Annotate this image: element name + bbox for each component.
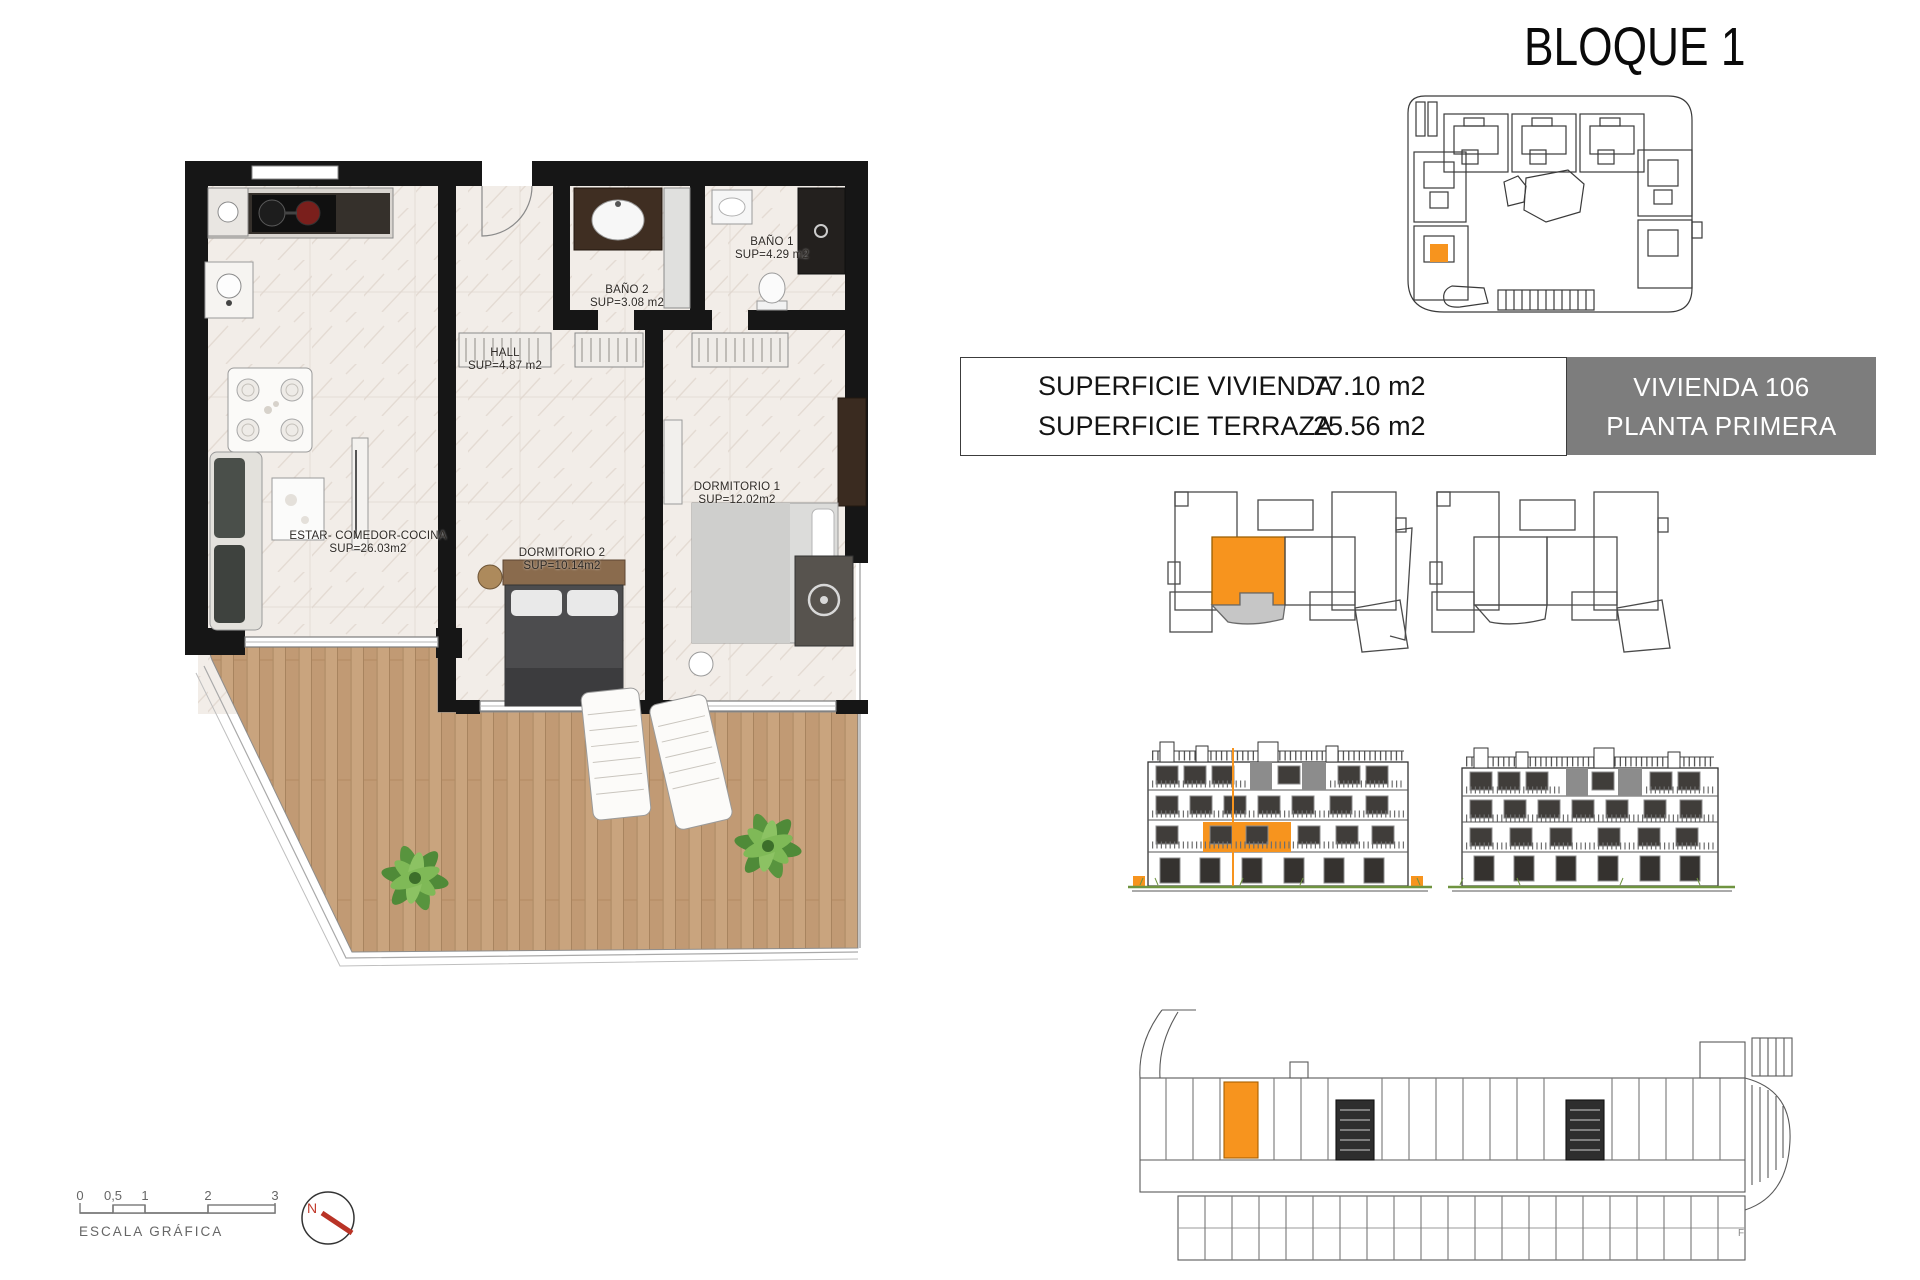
room-name: BAÑO 1 [697,236,847,249]
room-name: DORMITORIO 2 [487,547,637,560]
outdoor-shower-pad [795,556,853,646]
site-plan [1408,96,1702,312]
kitchen-window [252,166,338,179]
room-area: SUP=10.14m2 [487,560,637,573]
room-area: SUP=4.87 m2 [430,360,580,373]
surface-info-panel: SUPERFICIE VIVIENDA 77.10 m2 SUPERFICIE … [960,357,1567,456]
dining-table [228,368,312,452]
key-plan-secondary [1430,492,1670,652]
room-area: SUP=4.29 m2 [697,249,847,262]
room-label-estar: ESTAR- COMEDOR-COCINA SUP=26.03m2 [268,530,468,556]
drawing-layer [0,0,1920,1280]
surface-label: SUPERFICIE VIVIENDA [1038,371,1334,402]
highlighted-unit-site [1430,244,1448,262]
elevation-left [1128,742,1432,891]
unit-badge: VIVIENDA 106 PLANTA PRIMERA [1567,357,1876,455]
room-label-dormitorio1: DORMITORIO 1 SUP=12.02m2 [662,481,812,507]
room-area: SUP=26.03m2 [268,543,468,556]
room-label-bano1: BAÑO 1 SUP=4.29 m2 [697,236,847,262]
north-label: N [307,1200,317,1216]
surface-value: 25.56 m2 [1313,411,1426,442]
unit-floor: PLANTA PRIMERA [1567,407,1876,446]
stair-core [1566,1100,1604,1160]
key-plan-primary [1168,492,1412,652]
room-name: ESTAR- COMEDOR-COCINA [268,530,468,543]
scale-bar [80,1203,275,1213]
highlighted-unit-garage [1224,1082,1258,1158]
surface-value: 77.10 m2 [1313,371,1426,402]
stair-core [1336,1100,1374,1160]
room-area: SUP=3.08 m2 [552,297,702,310]
surface-label: SUPERFICIE TERRAZA [1038,411,1333,442]
sofa [210,452,262,630]
room-label-bano2: BAÑO 2 SUP=3.08 m2 [552,284,702,310]
side-table [689,652,713,676]
unit-number: VIVIENDA 106 [1567,368,1876,407]
room-name: DORMITORIO 1 [662,481,812,494]
room-name: BAÑO 2 [552,284,702,297]
footnote-mark: F [1738,1228,1744,1239]
garage-plan [1140,1010,1792,1260]
room-label-hall: HALL SUP=4.87 m2 [430,347,580,373]
page-title: BLOQUE 1 [1524,16,1745,78]
room-area: SUP=12.02m2 [662,494,812,507]
room-label-dormitorio2: DORMITORIO 2 SUP=10.14m2 [487,547,637,573]
scale-caption: ESCALA GRÁFICA [79,1224,223,1239]
sheet: BLOQUE 1 SUPERFICIE VIVIENDA 77.10 m2 SU… [0,0,1920,1280]
elevation-right [1448,748,1735,891]
room-name: HALL [430,347,580,360]
